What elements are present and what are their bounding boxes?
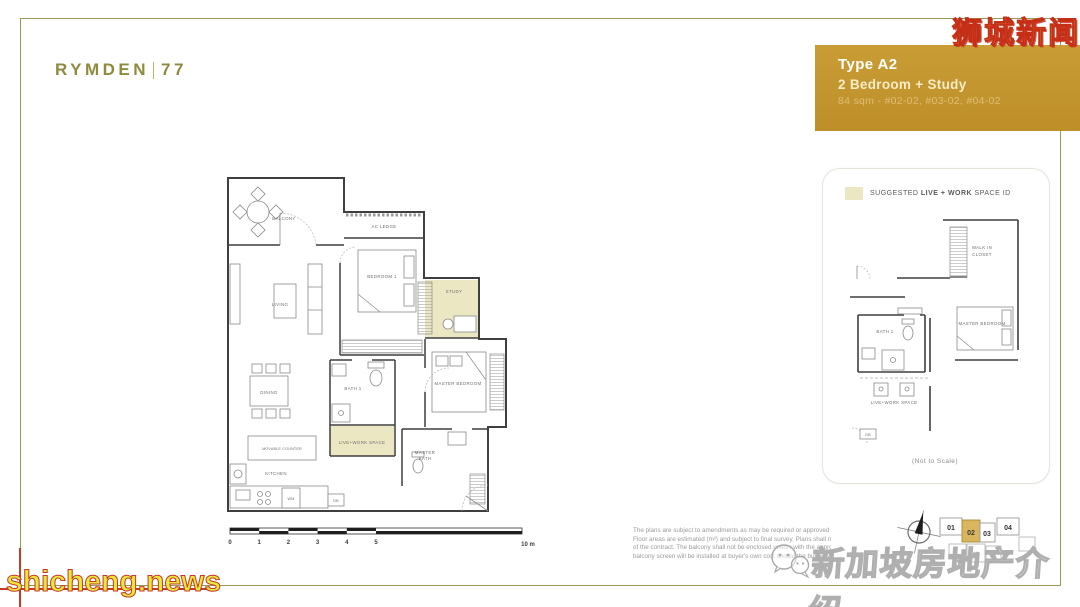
unit-type-banner: Type A2 2 Bedroom + Study 84 sqm - #02-0…	[815, 45, 1080, 131]
room-label-study: STUDY	[446, 289, 463, 294]
label-walkin-2: CLOSET	[972, 252, 992, 257]
balcony-chair	[233, 205, 247, 219]
project-logo: Rymden 77	[55, 60, 187, 80]
label-db: DB	[865, 433, 871, 437]
study-shelf	[418, 282, 432, 334]
dining-chair	[280, 364, 290, 373]
master-wardrobe	[490, 354, 504, 410]
room-label-balcony: BALCONY	[272, 216, 295, 221]
pillow	[404, 284, 414, 306]
scale-tick: 0	[228, 540, 232, 546]
balcony-table	[247, 201, 269, 223]
unit-label-01: 01	[947, 525, 955, 532]
livework-desk	[874, 383, 888, 396]
label-db: DB	[333, 499, 339, 503]
scale-bar: 0 1 2 3 4 5 10 m	[228, 526, 548, 552]
shelf	[898, 308, 922, 314]
watermark-sg-property: 新加坡房地产介绍	[807, 537, 1080, 607]
kitchen-sink	[236, 490, 250, 500]
unit-type-title: Type A2	[838, 56, 1080, 73]
study-desk	[454, 316, 476, 332]
label-wm: WM	[288, 497, 295, 501]
scale-tick: 3	[316, 540, 320, 546]
coffee-table	[274, 284, 296, 318]
basin	[862, 348, 875, 359]
dining-chair	[266, 409, 276, 418]
unit-label-02: 02	[967, 530, 975, 537]
unit-label-04: 04	[1004, 525, 1012, 532]
scale-end-label: 10 m	[521, 542, 535, 548]
balcony-chair	[251, 223, 265, 237]
dining-chair	[252, 409, 262, 418]
pillow	[436, 356, 448, 366]
shower-tray	[332, 404, 350, 422]
watermark-shicheng-news-url: shicheng.news	[6, 565, 221, 599]
label-movable-counter: MOVABLE COUNTER	[262, 447, 302, 451]
room-label-kitchen: KITCHEN	[265, 471, 287, 476]
disclaimer-line: The plans are subject to amendments as m…	[633, 527, 831, 536]
toilet	[413, 459, 423, 473]
scale-tick: 2	[287, 540, 291, 546]
room-label-bath1: BATH 1	[344, 386, 361, 391]
dining-chair	[266, 364, 276, 373]
livework-desk	[900, 383, 914, 396]
toilet-tank	[902, 319, 914, 324]
room-label-livework: LIVE+WORK SPACE	[339, 440, 386, 445]
tv-console	[230, 264, 240, 324]
room-label-dining: DINING	[260, 390, 278, 395]
scale-tick: 4	[345, 540, 349, 546]
room-label-bedroom1: BEDROOM 1	[367, 274, 397, 279]
scale-seg	[259, 531, 288, 534]
dining-chair	[252, 364, 262, 373]
label-livework: LIVE+WORK SPACE	[871, 400, 918, 405]
label-bath1: BATH 1	[876, 329, 893, 334]
walk-in-closet-shelf	[950, 227, 967, 277]
pillow	[1002, 329, 1011, 345]
scale-seg	[230, 528, 259, 531]
wechat-icon	[768, 542, 812, 582]
unit-type-subtitle: 2 Bedroom + Study	[838, 77, 1080, 92]
bedroom1-door-arc	[340, 247, 356, 263]
basin	[332, 364, 346, 376]
room-label-master-bath-1: MASTER	[415, 450, 435, 455]
detail-floor-plan: DB WALK IN CLOSET BATH 1 MASTER BEDROOM …	[824, 196, 1046, 448]
watermark-shicheng-news-cn: 狮城新闻	[952, 8, 1080, 52]
sofa	[308, 264, 322, 334]
shower-tray	[882, 350, 904, 370]
floorplan-page: Rymden 77 Type A2 2 Bedroom + Study 84 s…	[0, 0, 1080, 607]
room-label-master-bath-2: BATH	[419, 456, 432, 461]
toilet	[370, 370, 382, 386]
label-master-bedroom: MASTER BEDROOM	[958, 321, 1005, 326]
scale-tick: 5	[374, 540, 378, 546]
logo-divider	[153, 62, 154, 79]
scale-seg	[318, 531, 347, 534]
room-label-living: LIVING	[272, 302, 289, 307]
pillow	[450, 356, 462, 366]
not-to-scale-note: (Not to Scale)	[824, 458, 1046, 465]
balcony-chair	[251, 187, 265, 201]
logo-number: 77	[161, 60, 187, 80]
main-floor-plan: BALCONY AC LEDGE LIVING BEDROOM 1 STUDY …	[222, 168, 514, 520]
toilet	[903, 326, 913, 340]
label-walkin-1: WALK IN	[972, 245, 992, 250]
toilet-tank	[368, 362, 384, 368]
fridge	[230, 464, 246, 484]
scale-seg	[376, 531, 522, 534]
scale-seg	[347, 528, 376, 531]
scale-seg	[288, 528, 317, 531]
detail-door-arc	[857, 266, 870, 279]
wardrobe-1	[342, 340, 422, 353]
room-label-ac-ledge: AC LEDGE	[371, 224, 396, 229]
unit-type-details: 84 sqm - #02-02, #03-02, #04-02	[838, 95, 1080, 107]
shower	[470, 474, 485, 504]
logo-name: Rymden	[55, 60, 149, 80]
basin	[448, 432, 466, 445]
dining-chair	[280, 409, 290, 418]
scale-tick: 1	[258, 540, 262, 546]
pillow	[404, 256, 414, 278]
study-chair	[443, 319, 453, 329]
room-label-master-bedroom: MASTER BEDROOM	[434, 381, 481, 386]
